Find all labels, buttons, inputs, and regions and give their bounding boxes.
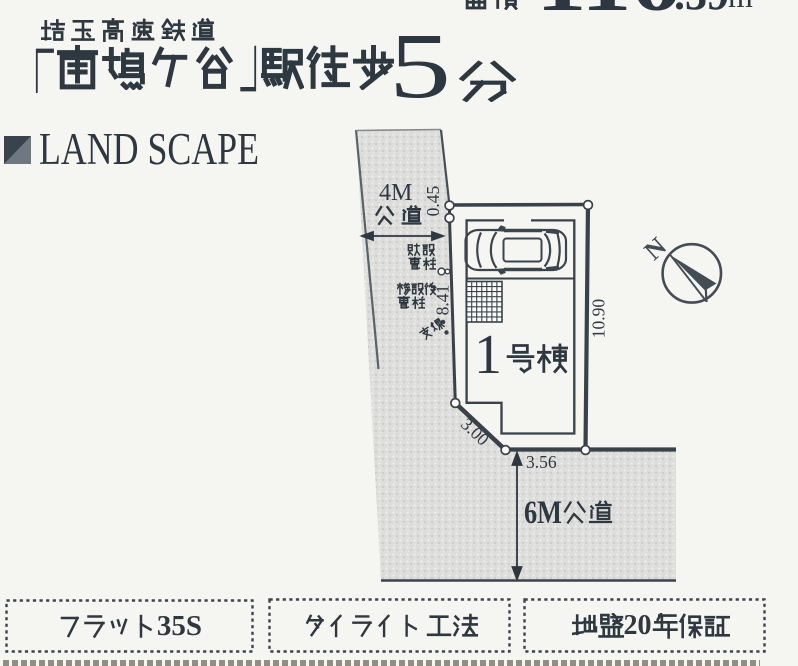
svg-text:3.56: 3.56 — [526, 452, 557, 472]
svg-text:6M: 6M — [524, 495, 562, 531]
svg-text:1: 1 — [474, 324, 502, 386]
svg-text:m²: m² — [728, 0, 762, 14]
svg-text:5: 5 — [389, 15, 451, 118]
svg-text:4M: 4M — [379, 180, 412, 206]
svg-text:10.90: 10.90 — [589, 299, 609, 339]
svg-text:N: N — [639, 231, 673, 265]
svg-text:110: 110 — [536, 0, 682, 27]
svg-text:LAND SCAPE: LAND SCAPE — [39, 124, 259, 174]
svg-text:.39: .39 — [674, 0, 729, 19]
